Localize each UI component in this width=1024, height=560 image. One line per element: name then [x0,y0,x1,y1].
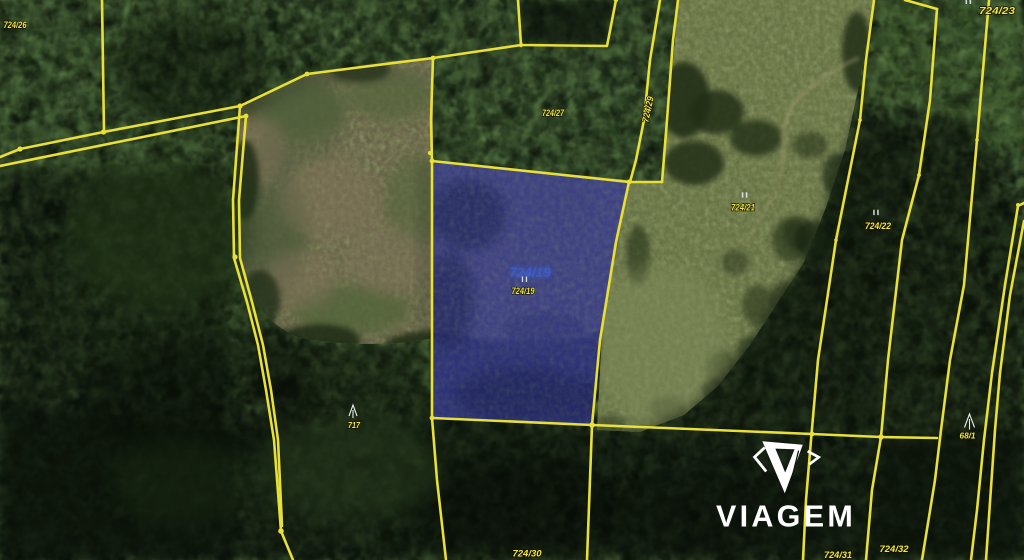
svg-text:724/30: 724/30 [513,549,543,560]
svg-text:717: 717 [348,420,361,430]
svg-text:68/1: 68/1 [960,431,976,441]
svg-text:724/19: 724/19 [512,286,535,296]
svg-text:VIAGEM: VIAGEM [716,499,856,533]
svg-text:724/26: 724/26 [4,20,28,31]
svg-text:724/22: 724/22 [865,221,892,232]
svg-text:724/23: 724/23 [979,5,1015,17]
svg-text:724/19: 724/19 [509,265,551,280]
svg-text:724/27: 724/27 [542,108,565,119]
svg-text:724/21: 724/21 [731,203,755,214]
svg-text:724/32: 724/32 [880,544,910,555]
svg-text:724/31: 724/31 [824,550,852,560]
